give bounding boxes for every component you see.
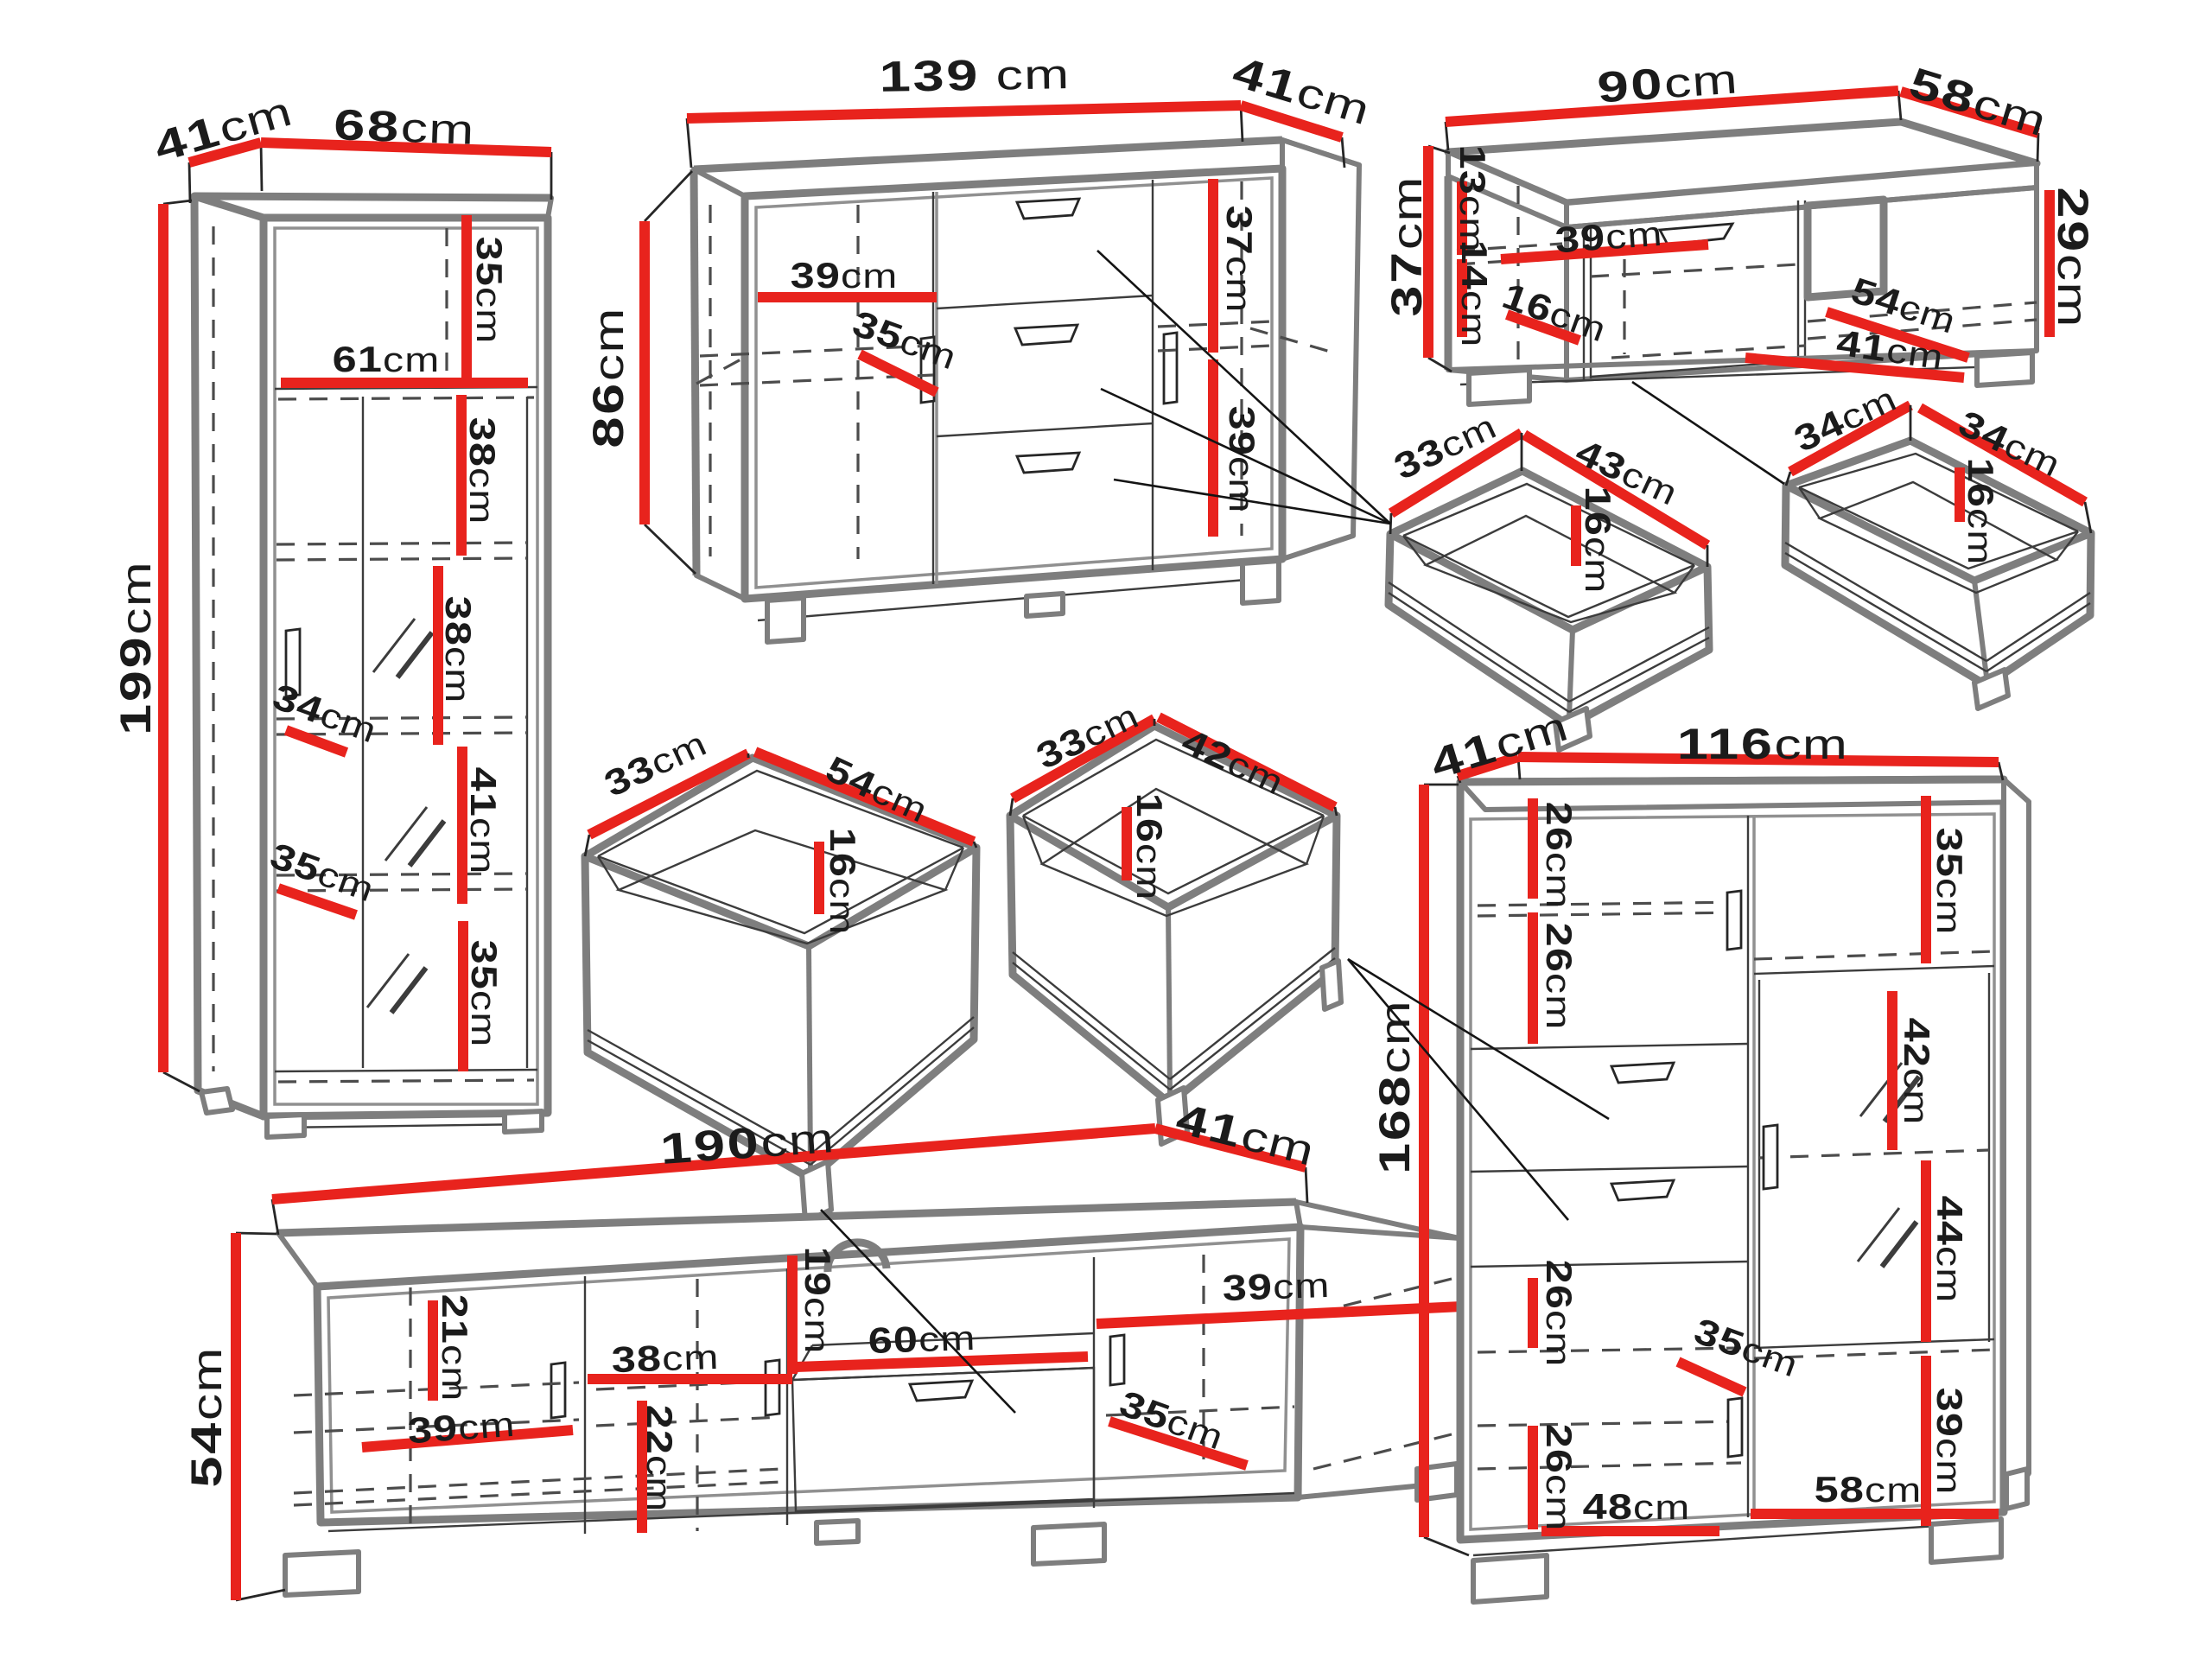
svg-text:16cm: 16cm <box>1129 793 1170 901</box>
svg-text:116cm: 116cm <box>1677 721 1848 768</box>
svg-text:139 cm: 139 cm <box>879 50 1071 101</box>
svg-text:39cm: 39cm <box>1554 213 1664 261</box>
svg-text:39cm: 39cm <box>1929 1388 1970 1496</box>
svg-text:38cm: 38cm <box>611 1336 720 1380</box>
svg-text:39cm: 39cm <box>791 255 899 296</box>
svg-text:35cm: 35cm <box>469 237 510 345</box>
svg-text:16cm: 16cm <box>1578 486 1618 594</box>
svg-text:29cm: 29cm <box>2049 187 2096 327</box>
svg-text:13cm: 13cm <box>1452 145 1493 253</box>
svg-text:38cm: 38cm <box>438 596 479 704</box>
svg-text:44cm: 44cm <box>1929 1196 1970 1304</box>
svg-text:35cm: 35cm <box>464 940 505 1048</box>
svg-text:39cm: 39cm <box>406 1403 517 1452</box>
svg-text:14cm: 14cm <box>1454 240 1495 348</box>
svg-text:16cm: 16cm <box>1961 458 2001 566</box>
svg-text:61cm: 61cm <box>333 339 441 379</box>
svg-text:168cm: 168cm <box>1371 1000 1419 1174</box>
svg-text:54cm: 54cm <box>183 1346 231 1487</box>
svg-text:41cm: 41cm <box>463 767 504 875</box>
svg-text:42cm: 42cm <box>1897 1018 1937 1126</box>
svg-text:26cm: 26cm <box>1539 923 1580 1031</box>
svg-text:26cm: 26cm <box>1539 802 1580 910</box>
svg-text:21cm: 21cm <box>435 1294 475 1402</box>
svg-text:86cm: 86cm <box>585 307 632 448</box>
svg-text:26cm: 26cm <box>1539 1260 1580 1368</box>
svg-text:38cm: 38cm <box>462 417 503 525</box>
svg-text:68cm: 68cm <box>333 101 475 154</box>
svg-text:19cm: 19cm <box>798 1247 838 1355</box>
svg-text:199cm: 199cm <box>112 561 160 735</box>
svg-text:35cm: 35cm <box>1929 828 1970 936</box>
svg-text:39cm: 39cm <box>1222 1264 1331 1308</box>
svg-text:22cm: 22cm <box>639 1405 680 1513</box>
svg-text:37cm: 37cm <box>1219 206 1260 314</box>
svg-text:16cm: 16cm <box>823 828 863 936</box>
svg-text:37cm: 37cm <box>1383 175 1431 316</box>
svg-text:26cm: 26cm <box>1539 1424 1580 1532</box>
svg-text:48cm: 48cm <box>1583 1486 1691 1527</box>
svg-text:58cm: 58cm <box>1815 1469 1923 1510</box>
